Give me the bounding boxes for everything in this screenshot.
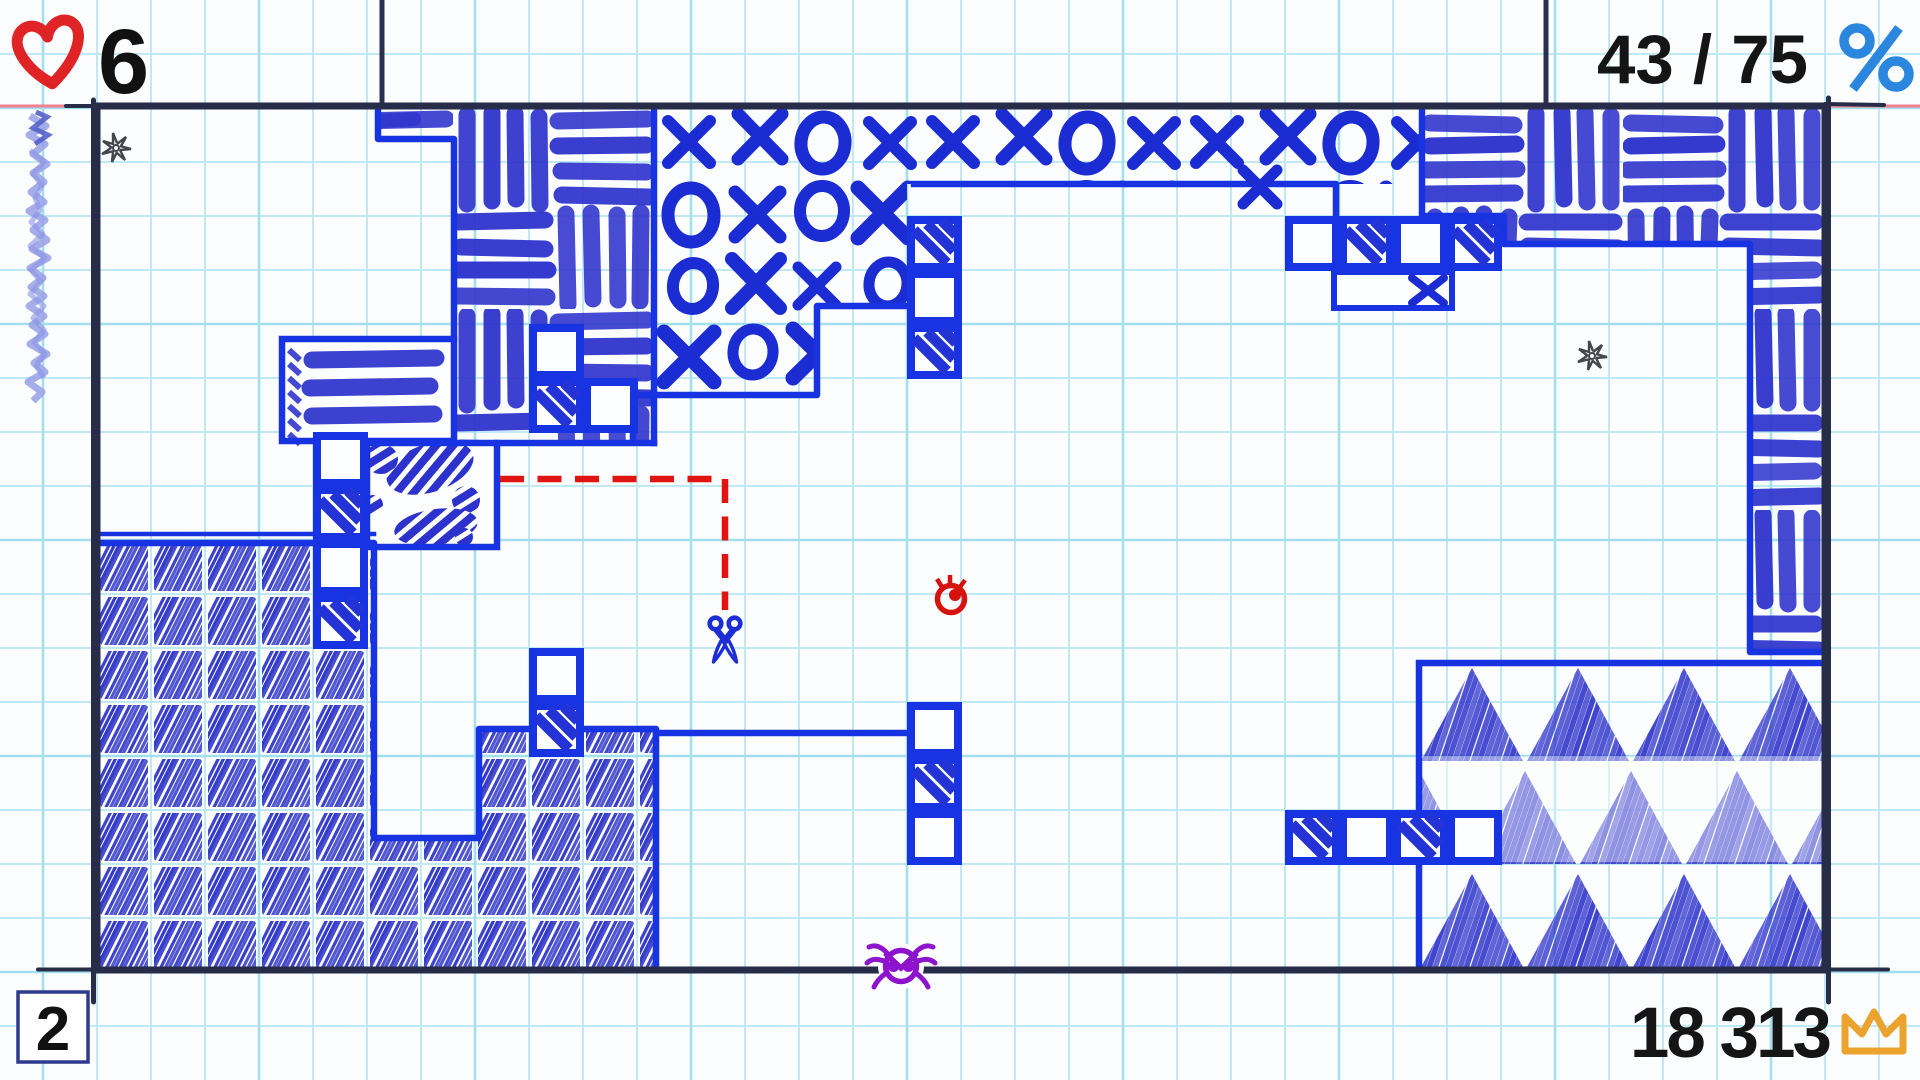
svg-text:6: 6 xyxy=(98,11,149,113)
svg-text:43 / 75: 43 / 75 xyxy=(1597,21,1808,98)
svg-text:18 313: 18 313 xyxy=(1630,994,1830,1073)
svg-text:2: 2 xyxy=(36,995,70,1064)
